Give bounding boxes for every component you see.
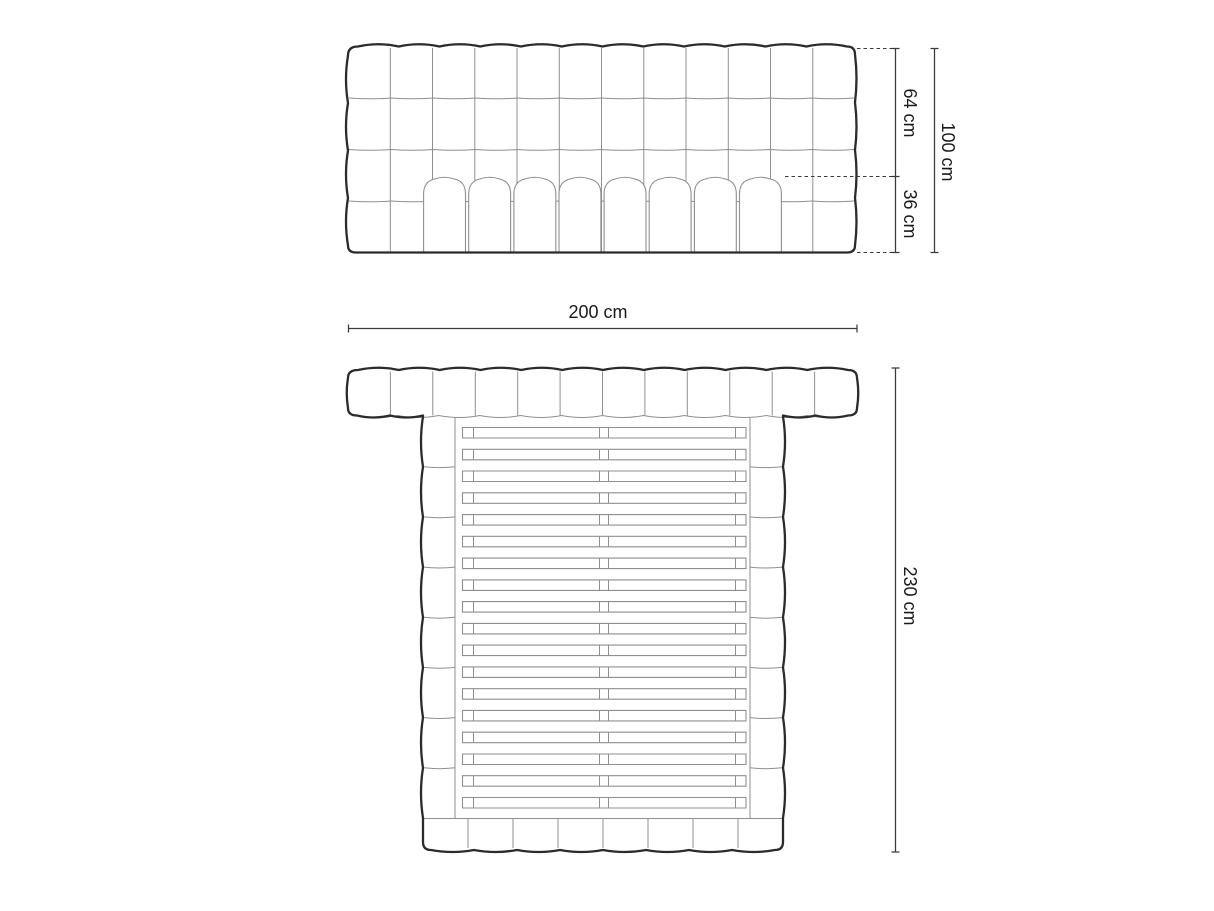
strip-bottom-edge — [357, 416, 848, 418]
mattress-channel — [604, 177, 646, 252]
plan-dimensions: 200 cm 230 cm — [349, 302, 921, 852]
slat — [463, 710, 747, 721]
rail-divider — [424, 768, 455, 769]
slat — [463, 645, 747, 656]
slat — [463, 602, 747, 613]
rail-divider — [750, 718, 782, 719]
rail-divider — [750, 667, 782, 668]
front-dimensions: 64 cm 36 cm 100 cm — [785, 49, 958, 253]
rail-divider — [750, 517, 782, 518]
dimension-label-200cm: 200 cm — [568, 302, 627, 322]
slat — [463, 471, 747, 482]
rail-divider — [424, 567, 455, 568]
mattress-channel — [514, 177, 556, 252]
slat — [463, 536, 747, 547]
slat — [463, 493, 747, 504]
rail-divider — [424, 667, 455, 668]
front-view — [346, 44, 857, 252]
mattress-channel — [740, 177, 782, 252]
slat — [463, 428, 747, 439]
slat — [463, 754, 747, 765]
rail-divider — [424, 517, 455, 518]
slat — [463, 667, 747, 678]
rail-divider — [424, 718, 455, 719]
slat-base — [463, 428, 747, 809]
mattress-channel — [649, 177, 691, 252]
rail-divider — [750, 567, 782, 568]
dimension-label-64cm: 64 cm — [900, 88, 920, 137]
slat — [463, 798, 747, 809]
slat — [463, 623, 747, 634]
rail-divider — [424, 467, 455, 468]
dimension-label-36cm: 36 cm — [900, 189, 920, 238]
slat — [463, 732, 747, 743]
rail-divider — [750, 768, 782, 769]
slat — [463, 580, 747, 591]
slat — [463, 776, 747, 787]
slat — [463, 558, 747, 569]
slat — [463, 449, 747, 460]
diagram-canvas: 64 cm 36 cm 100 cm 200 cm 230 cm — [0, 0, 1214, 911]
mattress-channels — [424, 177, 782, 252]
bed-dimension-diagram: 64 cm 36 cm 100 cm 200 cm 230 cm — [0, 0, 1214, 911]
dimension-label-230cm: 230 cm — [900, 566, 920, 625]
mattress-channel — [469, 177, 511, 252]
headboard-top-strip — [347, 368, 859, 418]
top-view — [347, 368, 859, 852]
mattress-channel — [559, 177, 601, 252]
rail-divider — [750, 467, 782, 468]
rail-divider — [424, 617, 455, 618]
rail-divider — [750, 617, 782, 618]
mattress-channel — [694, 177, 736, 252]
slat — [463, 689, 747, 700]
slat — [463, 515, 747, 526]
mattress-channel — [424, 177, 466, 252]
dimension-label-100cm: 100 cm — [938, 122, 958, 181]
